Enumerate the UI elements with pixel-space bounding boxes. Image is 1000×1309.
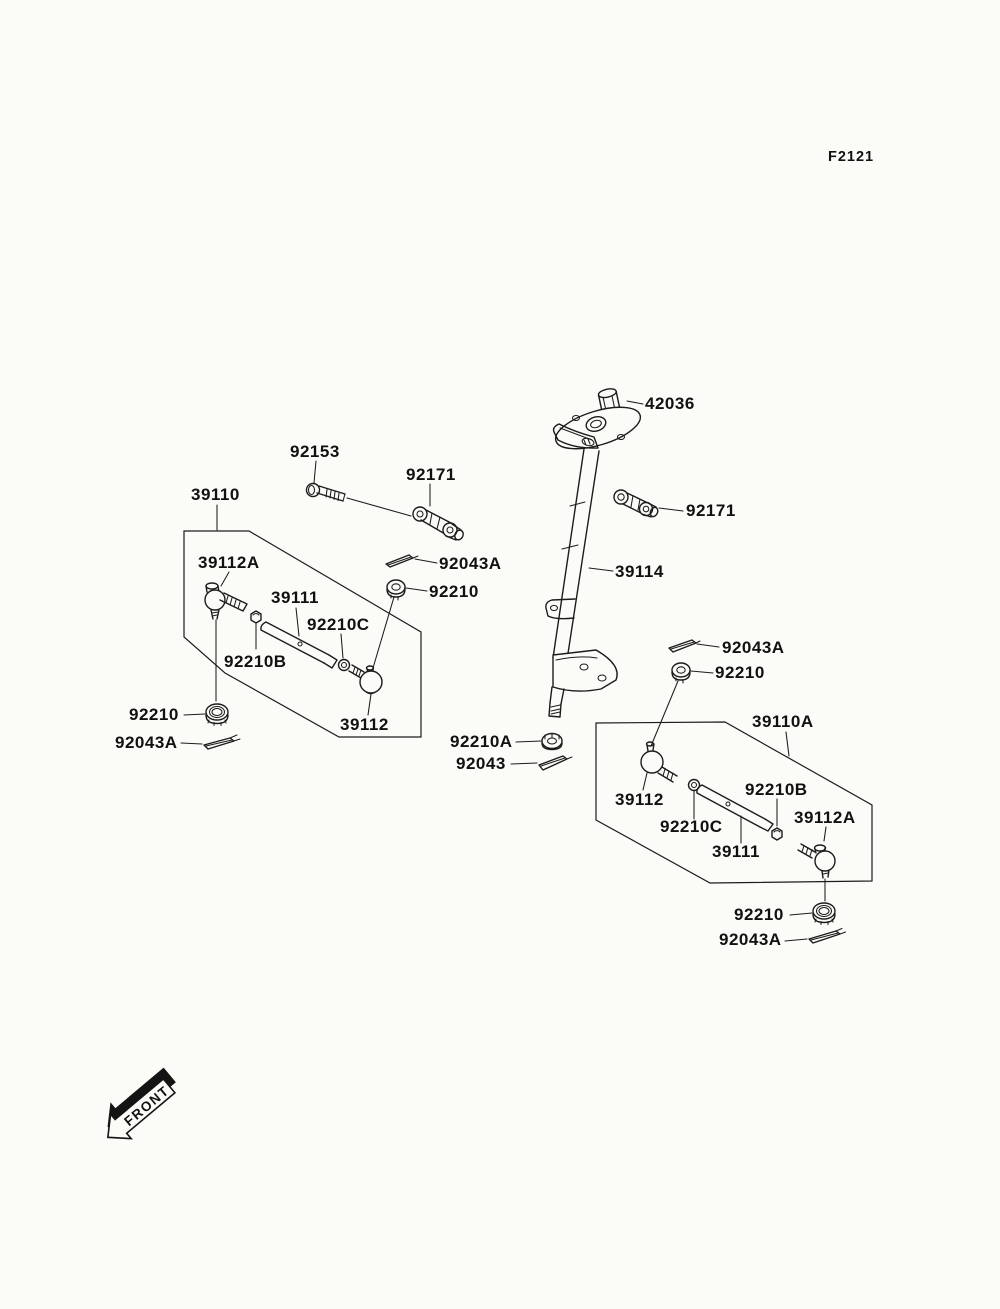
parts-diagram-page: F2121 [0,0,1000,1309]
right-rod-lock-nut-92210b-drawing [772,828,782,840]
part-label-92043a-bottom-right: 92043A [719,930,782,949]
pinch-bolt-drawing [307,484,412,517]
part-label-39112a-right: 39112A [794,808,856,827]
part-label-39110a: 39110A [752,712,814,731]
part-label-92210-center: 92210 [429,582,479,601]
clamp-holder-upper-drawing [413,507,465,541]
part-label-92210c-left: 92210C [307,615,370,634]
left-tie-rod-end-inner-drawing [349,665,382,694]
right-nut-drawing [651,663,690,746]
part-label-39112-right: 39112 [615,790,664,809]
bottom-right-cotter-pin-drawing [809,929,846,944]
part-label-39112a-left: 39112A [198,553,260,572]
part-label-92043: 92043 [456,754,506,773]
part-label-92171-upper: 92171 [406,465,456,484]
front-direction-arrow: FRONT [92,1063,184,1150]
figure-code: F2121 [828,149,874,165]
left-rod-nut-92210c-drawing [339,660,350,671]
stem-cotter-pin-drawing [539,756,572,770]
castle-nut-drawing [542,734,562,750]
left-rod-lock-nut-92210b-drawing [251,611,261,649]
part-label-92210c-right: 92210C [660,817,723,836]
right-tie-rod-end-outer-drawing [798,844,835,901]
part-label-92210a: 92210A [450,732,513,751]
part-label-92171-right: 92171 [686,501,736,520]
part-label-92210b-left: 92210B [224,652,287,671]
clamp-holder-right-drawing [614,490,659,518]
part-label-92043a-center: 92043A [439,554,502,573]
part-label-39114: 39114 [615,562,664,581]
part-label-92043a-right: 92043A [722,638,785,657]
part-label-92210-right: 92210 [715,663,765,682]
bottom-left-nut-drawing [206,704,228,726]
center-cotter-pin-drawing [386,555,418,567]
part-label-92210b-right: 92210B [745,780,808,799]
part-label-92043a-bottom-left: 92043A [115,733,178,752]
left-tie-rod-end-outer-drawing [205,583,247,701]
steering-parts-diagram: F2121 [0,0,1000,1309]
bottom-right-nut-drawing [813,903,835,925]
part-label-92153: 92153 [290,442,340,461]
part-label-39111-left: 39111 [271,588,319,607]
part-label-39111-right: 39111 [712,842,760,861]
part-label-92210-bottom-left: 92210 [129,705,179,724]
center-nut-drawing [373,580,405,668]
part-label-42036: 42036 [645,394,695,413]
steering-shaft-drawing [546,387,645,717]
bottom-left-cotter-pin-drawing [204,735,240,749]
right-cotter-pin-drawing [669,640,700,652]
part-label-39110: 39110 [191,485,240,504]
part-label-39112-left: 39112 [340,715,389,734]
part-label-92210-bottom-right: 92210 [734,905,784,924]
